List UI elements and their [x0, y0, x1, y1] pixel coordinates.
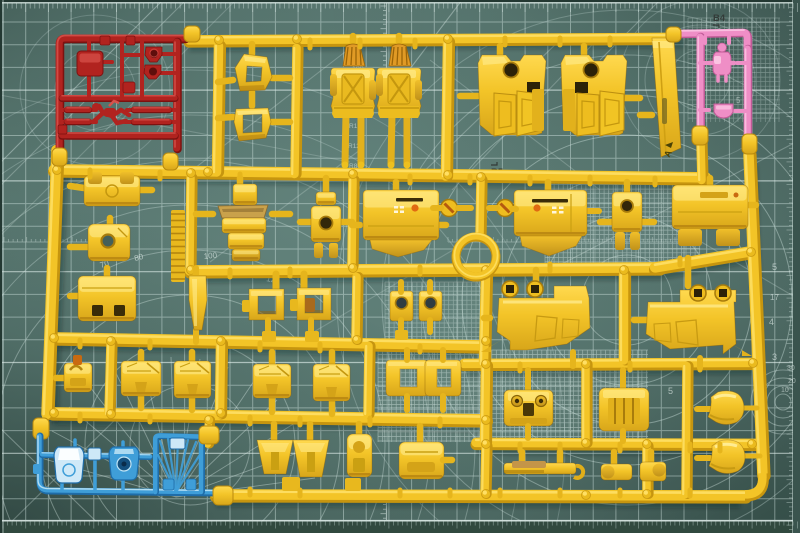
svg-text:5: 5 — [668, 386, 673, 396]
svg-text:5: 5 — [772, 262, 777, 272]
svg-text:3: 3 — [772, 352, 777, 362]
svg-text:5: 5 — [736, 96, 741, 105]
svg-text:4: 4 — [769, 317, 774, 327]
svg-text:20: 20 — [788, 378, 796, 385]
svg-text:100: 100 — [203, 251, 218, 261]
svg-text:10: 10 — [781, 387, 789, 394]
svg-text:B4: B4 — [713, 13, 726, 24]
svg-text:17: 17 — [770, 293, 779, 302]
svg-text:30: 30 — [787, 365, 795, 372]
